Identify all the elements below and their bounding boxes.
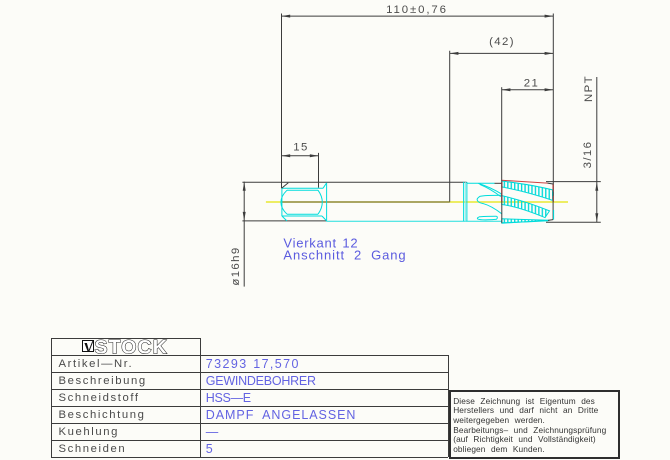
svg-text:(42): (42) (489, 36, 515, 48)
svg-text:Anschnitt 2 Gang: Anschnitt 2 Gang (283, 247, 406, 262)
svg-text:21: 21 (524, 78, 539, 90)
svg-text:110±0,76: 110±0,76 (386, 4, 448, 16)
svg-text:STOCK: STOCK (95, 337, 168, 357)
svg-text:ø16h9: ø16h9 (230, 246, 242, 285)
svg-text:NPT: NPT (583, 75, 595, 102)
svg-text:3/16: 3/16 (582, 141, 594, 169)
svg-text:15: 15 (293, 142, 308, 154)
